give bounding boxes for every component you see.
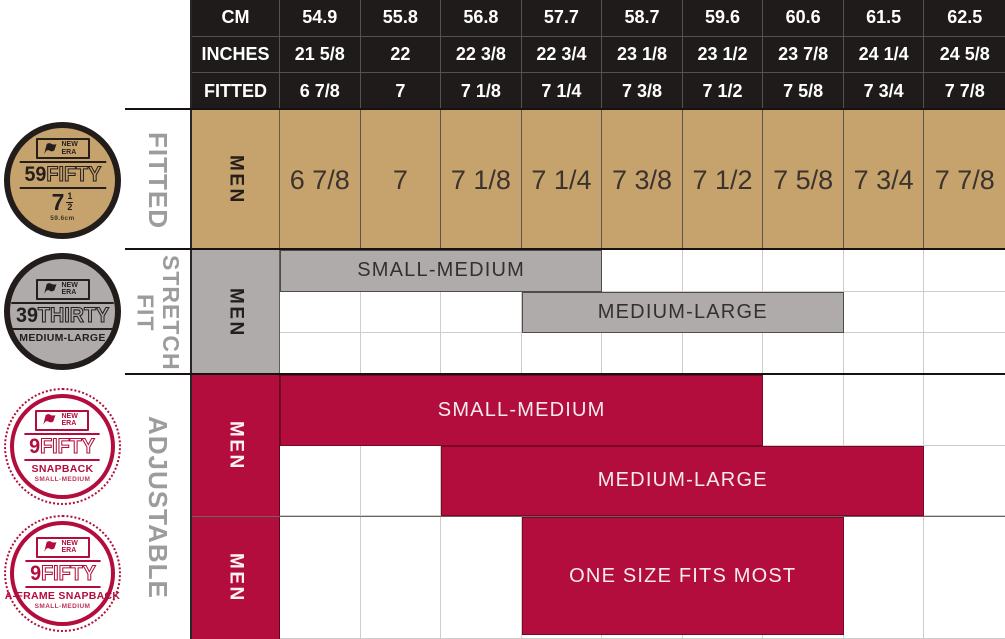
flag-icon (42, 282, 59, 296)
table-header: CM54.955.856.857.758.759.660.661.562.5IN… (192, 0, 1005, 110)
header-value-cell: 62.5 (924, 0, 1005, 37)
badge-product-number: 59 (24, 163, 46, 187)
section-divider (125, 373, 1005, 375)
side-label-stretch-fit: STRETCH FIT (125, 250, 190, 375)
flag-icon (42, 142, 59, 156)
header-value-cell: 22 (361, 37, 442, 74)
header-value-cell: 24 5/8 (924, 37, 1005, 74)
badge-content: NEW ERA59FIFTY71259.6cm (17, 138, 109, 222)
header-value-cell: 54.9 (280, 0, 361, 37)
badge-product-name: 9FIFTY (25, 433, 100, 461)
badge-9fifty-snapback: NEW ERA9FIFTYSNAPBACKSMALL-MEDIUM (4, 388, 121, 505)
header-row-label: INCHES (192, 37, 280, 74)
badge-content: NEW ERA9FIFTYA-FRAME SNAPBACKSMALL-MEDIU… (5, 537, 121, 610)
header-value-cell: 6 7/8 (280, 73, 361, 110)
badge-subtitle: A-FRAME SNAPBACK (5, 590, 121, 602)
header-value-cell: 7 3/4 (844, 73, 925, 110)
new-era-flag-logo: NEW ERA (35, 410, 89, 431)
grid-cell (924, 250, 1005, 292)
grid-cell (602, 250, 683, 292)
grid-cell (522, 333, 603, 375)
badge-content: NEW ERA9FIFTYSNAPBACKSMALL-MEDIUM (22, 410, 102, 483)
badge-content: NEW ERA39THIRTYMEDIUM-LARGE (8, 279, 117, 344)
grid-cell (280, 333, 361, 375)
header-row-label: CM (192, 0, 280, 37)
product-badge-column: NEW ERA59FIFTY71259.6cmNEW ERA39THIRTYME… (0, 0, 125, 639)
grid-cell (763, 375, 844, 446)
badge-product-word: FIFTY (46, 163, 101, 187)
badge-brand: NEW ERA (61, 413, 83, 428)
header-value-cell: 7 1/2 (683, 73, 764, 110)
section-divider (125, 248, 1005, 250)
grid-cell (844, 250, 925, 292)
grid-cell (683, 250, 764, 292)
badge-product-name: 59FIFTY (19, 161, 105, 189)
fitted-size-cell: 6 7/8 (280, 110, 361, 250)
grid-cell (844, 333, 925, 375)
side-label-fitted: FITTED (125, 110, 190, 250)
size-range-bar: MEDIUM-LARGE (441, 446, 924, 517)
grid-cell (844, 375, 925, 446)
grid-cell (924, 446, 1005, 517)
fitted-size-cell: 7 3/8 (602, 110, 683, 250)
badge-product-name: 9FIFTY (25, 560, 100, 588)
header-value-cell: 58.7 (602, 0, 683, 37)
badge-subtitle: SNAPBACK (32, 463, 94, 475)
header-value-cell: 55.8 (361, 0, 442, 37)
badge-product-word: FIFTY (41, 562, 96, 586)
flag-icon (42, 540, 59, 554)
grid-cell (441, 517, 522, 639)
header-value-cell: 59.6 (683, 0, 764, 37)
badge-brand: NEW ERA (62, 540, 84, 555)
grid-cell (683, 333, 764, 375)
grid-cell (844, 292, 925, 334)
header-value-cell: 23 7/8 (763, 37, 844, 74)
grid-cell (602, 333, 683, 375)
badge-fine-print: 59.6cm (50, 216, 74, 223)
header-value-cell: 60.6 (763, 0, 844, 37)
new-era-flag-logo: NEW ERA (36, 138, 90, 159)
badge-product-name: 39THIRTY (11, 302, 114, 330)
badge-39thirty: NEW ERA39THIRTYMEDIUM-LARGE (4, 253, 121, 370)
badge-brand: NEW ERA (62, 141, 84, 156)
size-table: CM54.955.856.857.758.759.660.661.562.5IN… (190, 0, 1005, 639)
badge-fine-print: SMALL-MEDIUM (35, 477, 91, 484)
size-range-bar: SMALL-MEDIUM (280, 250, 602, 292)
fitted-size-cell: 7 1/4 (522, 110, 603, 250)
grid-cell (924, 333, 1005, 375)
men-row-label: MEN (192, 110, 280, 250)
header-value-cell: 7 1/8 (441, 73, 522, 110)
section-adjustable-9fifty-snapback: MENSMALL-MEDIUMMEDIUM-LARGE (192, 375, 1005, 517)
size-range-bar: SMALL-MEDIUM (280, 375, 763, 446)
header-value-cell: 23 1/8 (602, 37, 683, 74)
badge-size-fraction: 12 (66, 192, 73, 213)
fitted-size-cell: 7 (361, 110, 442, 250)
grid-cell (361, 517, 442, 639)
grid-cell (924, 375, 1005, 446)
men-row-label: MEN (192, 375, 280, 516)
badge-product-number: 9 (30, 435, 41, 459)
fitted-size-cell: 7 3/4 (844, 110, 925, 250)
grid-cell (280, 517, 361, 639)
section-fitted-59fifty: MEN6 7/877 1/87 1/47 3/87 1/27 5/87 3/47… (192, 110, 1005, 250)
grid-cell (844, 517, 925, 639)
badge-product-number: 9 (30, 562, 41, 586)
header-value-cell: 22 3/8 (441, 37, 522, 74)
header-value-cell: 56.8 (441, 0, 522, 37)
badge-9fifty-aframe: NEW ERA9FIFTYA-FRAME SNAPBACKSMALL-MEDIU… (4, 515, 121, 632)
new-era-size-chart: NEW ERA59FIFTY71259.6cmNEW ERA39THIRTYME… (0, 0, 1005, 639)
new-era-flag-logo: NEW ERA (36, 279, 90, 300)
header-row-label: FITTED (192, 73, 280, 110)
fitted-size-cell: 7 1/8 (441, 110, 522, 250)
header-value-cell: 24 1/4 (844, 37, 925, 74)
header-value-cell: 22 3/4 (522, 37, 603, 74)
badge-brand: NEW ERA (62, 282, 84, 297)
new-era-flag-logo: NEW ERA (36, 537, 90, 558)
grid-cell (361, 333, 442, 375)
badge-fine-print: SMALL-MEDIUM (35, 604, 91, 611)
men-row-label: MEN (192, 250, 280, 375)
badge-product-word: THIRTY (38, 304, 109, 328)
header-value-cell: 61.5 (844, 0, 925, 37)
size-range-bar: ONE SIZE FITS MOST (522, 517, 844, 635)
flag-icon (41, 413, 58, 427)
header-value-cell: 7 1/4 (522, 73, 603, 110)
size-range-bar: MEDIUM-LARGE (522, 292, 844, 334)
header-value-cell: 21 5/8 (280, 37, 361, 74)
men-row-label: MEN (192, 517, 280, 639)
grid-cell (441, 292, 522, 334)
badge-product-word: FIFTY (41, 435, 96, 459)
header-value-cell: 7 5/8 (763, 73, 844, 110)
badge-product-number: 39 (16, 304, 38, 328)
section-adjustable-9fifty-aframe: MENONE SIZE FITS MOST (192, 517, 1005, 639)
grid-cell (924, 292, 1005, 334)
side-label-adjustable: ADJUSTABLE (125, 375, 190, 639)
header-value-cell: 7 7/8 (924, 73, 1005, 110)
badge-size: 712 (52, 191, 74, 214)
header-value-cell: 23 1/2 (683, 37, 764, 74)
badge-59fifty: NEW ERA59FIFTY71259.6cm (4, 122, 121, 239)
section-divider (125, 108, 1005, 110)
header-value-cell: 7 3/8 (602, 73, 683, 110)
grid-cell (441, 333, 522, 375)
badge-subtitle: MEDIUM-LARGE (19, 332, 105, 344)
fitted-size-cell: 7 7/8 (924, 110, 1005, 250)
fitted-size-cell: 7 5/8 (763, 110, 844, 250)
grid-cell (361, 446, 442, 517)
fitted-size-cell: 7 1/2 (683, 110, 764, 250)
header-value-cell: 7 (361, 73, 442, 110)
grid-cell (280, 446, 361, 517)
grid-cell (763, 333, 844, 375)
section-stretch-fit-39thirty: MENSMALL-MEDIUMMEDIUM-LARGE (192, 250, 1005, 375)
grid-cell (361, 292, 442, 334)
grid-cell (763, 250, 844, 292)
grid-cell (280, 292, 361, 334)
header-value-cell: 57.7 (522, 0, 603, 37)
grid-cell (924, 517, 1005, 639)
